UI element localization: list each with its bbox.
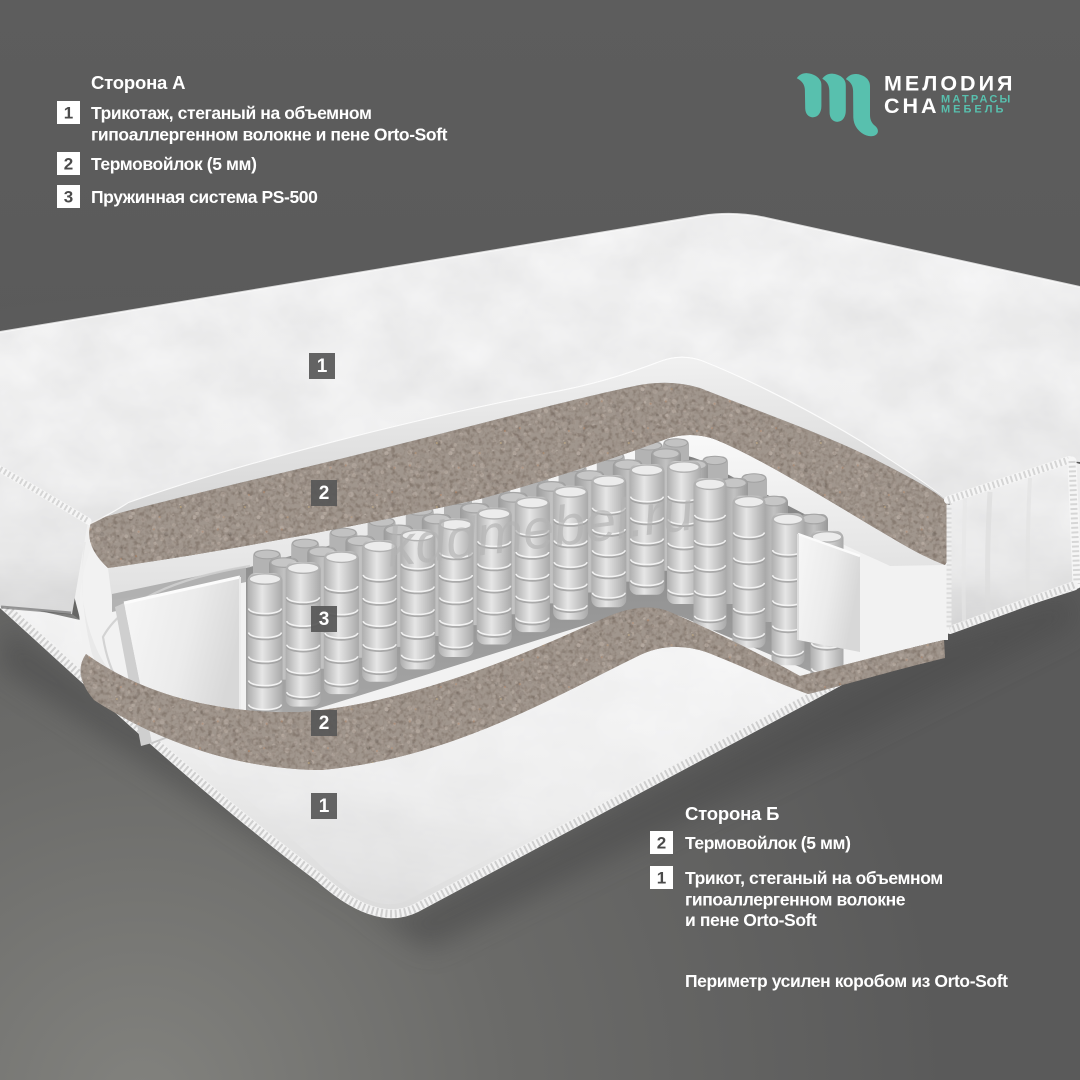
svg-text:СНА: СНА: [884, 94, 940, 118]
svg-text:3: 3: [319, 609, 330, 630]
svg-text:и пене Orto-Soft: и пене Orto-Soft: [685, 910, 817, 930]
svg-text:2: 2: [657, 834, 666, 853]
svg-text:гипоаллергенном волокне и пене: гипоаллергенном волокне и пене Orto-Soft: [91, 125, 448, 145]
svg-text:Термовойлок (5 мм): Термовойлок (5 мм): [685, 833, 851, 853]
svg-text:Сторона А: Сторона А: [91, 72, 185, 93]
svg-text:Трикот, стеганый на объемном: Трикот, стеганый на объемном: [685, 868, 943, 888]
svg-text:1: 1: [657, 869, 666, 888]
svg-text:3: 3: [64, 188, 73, 207]
svg-text:2: 2: [319, 483, 330, 504]
svg-text:гипоаллергенном волокне: гипоаллергенном волокне: [685, 890, 906, 910]
svg-text:1: 1: [64, 104, 73, 123]
svg-text:1: 1: [317, 356, 328, 377]
svg-text:МЕБЕЛЬ: МЕБЕЛЬ: [941, 104, 1006, 116]
svg-text:2: 2: [64, 155, 73, 174]
svg-text:Термовойлок (5 мм): Термовойлок (5 мм): [91, 154, 257, 174]
svg-text:Периметр усилен коробом из Ort: Периметр усилен коробом из Orto-Soft: [685, 971, 1008, 991]
svg-text:2: 2: [319, 713, 330, 734]
svg-text:Трикотаж, стеганый на объемном: Трикотаж, стеганый на объемном: [91, 103, 372, 123]
svg-text:1: 1: [319, 796, 330, 817]
svg-text:МЕЛОDИЯ: МЕЛОDИЯ: [884, 72, 1016, 96]
svg-text:Пружинная система PS-500: Пружинная система PS-500: [91, 187, 318, 207]
svg-text:Сторона Б: Сторона Б: [685, 803, 779, 824]
